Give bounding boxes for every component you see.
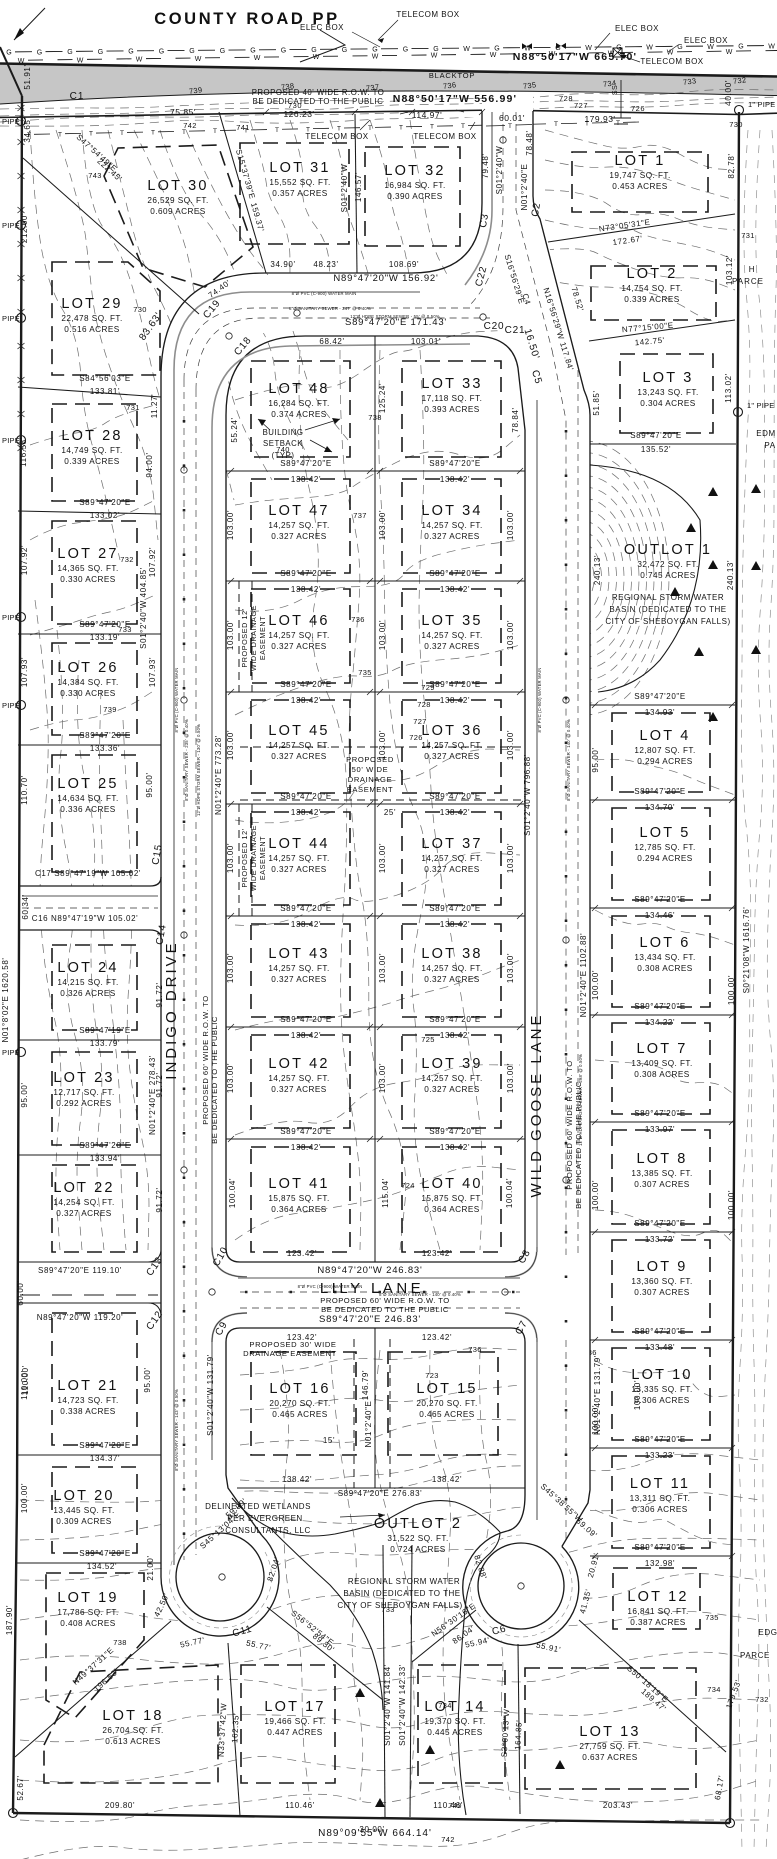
svg-text:H: H: [749, 265, 755, 274]
svg-text:743: 743: [88, 171, 101, 180]
svg-text:123.42': 123.42': [422, 1249, 452, 1258]
svg-text:LOT 43: LOT 43: [268, 946, 329, 962]
svg-text:DRAINAGE EASEMENT: DRAINAGE EASEMENT: [243, 1349, 337, 1358]
svg-text:S89°47'20"E: S89°47'20"E: [79, 498, 131, 507]
svg-text:20,270 SQ. FT.: 20,270 SQ. FT.: [416, 1399, 477, 1408]
svg-text:W: W: [490, 52, 497, 59]
svg-text:100.00': 100.00': [727, 975, 736, 1005]
svg-text:739: 739: [103, 705, 116, 714]
svg-text:138.42': 138.42': [291, 696, 321, 705]
svg-text:LOT 27: LOT 27: [57, 546, 118, 562]
svg-text:138.42': 138.42': [440, 475, 470, 484]
svg-text:SETBACK: SETBACK: [263, 439, 303, 448]
svg-text:S89°47'20"E: S89°47'20"E: [634, 692, 686, 701]
svg-text:PROPOSED 30' WIDE: PROPOSED 30' WIDE: [249, 1340, 336, 1349]
svg-text:103.00': 103.00': [226, 843, 235, 873]
svg-text:79.48': 79.48': [481, 153, 490, 178]
svg-text:T: T: [616, 120, 620, 127]
svg-text:0.307 ACRES: 0.307 ACRES: [634, 1180, 690, 1189]
svg-text:0.308 ACRES: 0.308 ACRES: [637, 964, 693, 973]
svg-text:103.00': 103.00': [506, 620, 515, 650]
svg-text:0.327 ACRES: 0.327 ACRES: [424, 642, 480, 651]
svg-text:138.42': 138.42': [440, 1143, 470, 1152]
svg-text:G: G: [342, 47, 347, 54]
svg-text:91.72': 91.72': [155, 982, 164, 1007]
svg-text:W: W: [195, 56, 202, 63]
svg-text:14,754 SQ. FT.: 14,754 SQ. FT.: [621, 284, 682, 293]
svg-text:S89°47'20"E: S89°47'20"E: [280, 680, 332, 689]
svg-text:13,409 SQ. FT.: 13,409 SQ. FT.: [631, 1059, 692, 1068]
svg-text:PIPE: PIPE: [2, 1048, 20, 1057]
svg-text:14,749 SQ. FT.: 14,749 SQ. FT.: [61, 446, 122, 455]
svg-text:212.60': 212.60': [20, 213, 29, 243]
svg-text:31,522 SQ. FT.: 31,522 SQ. FT.: [387, 1534, 448, 1543]
svg-text:17,786 SQ. FT.: 17,786 SQ. FT.: [57, 1608, 118, 1617]
svg-text:138.42': 138.42': [282, 1475, 312, 1484]
svg-text:S0°21'08"W 1616.76': S0°21'08"W 1616.76': [742, 907, 751, 994]
svg-text:735: 735: [358, 668, 371, 677]
svg-text:LOT 39: LOT 39: [421, 1056, 482, 1072]
svg-text:S89°47'20"E: S89°47'20"E: [79, 1549, 131, 1558]
svg-text:EDM: EDM: [756, 429, 776, 438]
svg-text:C17 S89°47'19"W 105.02': C17 S89°47'19"W 105.02': [35, 869, 141, 878]
svg-text:0.327 ACRES: 0.327 ACRES: [424, 532, 480, 541]
svg-text:PA: PA: [764, 441, 775, 450]
svg-text:LOT 5: LOT 5: [639, 825, 690, 841]
svg-text:G: G: [37, 49, 42, 56]
svg-text:13,360 SQ. FT.: 13,360 SQ. FT.: [631, 1277, 692, 1286]
svg-text:0.745 ACRES: 0.745 ACRES: [640, 571, 696, 580]
svg-text:SS: SS: [612, 85, 619, 95]
svg-text:BASIN (DEDICATED TO THE: BASIN (DEDICATED TO THE: [609, 605, 726, 614]
svg-text:138.42': 138.42': [291, 585, 321, 594]
svg-text:0.327 ACRES: 0.327 ACRES: [271, 752, 327, 761]
svg-text:WIDE DRAINAGE: WIDE DRAINAGE: [249, 825, 258, 891]
svg-text:BE DEDICATED TO THE PUBLIC: BE DEDICATED TO THE PUBLIC: [253, 97, 384, 106]
svg-text:14,634 SQ. FT.: 14,634 SQ. FT.: [57, 794, 118, 803]
svg-text:103.00': 103.00': [378, 953, 387, 983]
svg-text:S01°2'40"W 131.79': S01°2'40"W 131.79': [206, 1354, 215, 1436]
svg-text:26,529 SQ. FT.: 26,529 SQ. FT.: [147, 196, 208, 205]
svg-text:135.52': 135.52': [641, 445, 671, 454]
svg-text:S89°47'20"E: S89°47'20"E: [280, 459, 332, 468]
svg-text:12"Ø HDPE STORM SEWER - 130' @: 12"Ø HDPE STORM SEWER - 130' @ 0.50%: [196, 724, 201, 816]
svg-text:0.724 ACRES: 0.724 ACRES: [390, 1545, 446, 1554]
svg-text:113.02': 113.02': [724, 373, 733, 403]
svg-text:LOT 32: LOT 32: [384, 163, 445, 179]
svg-text:103.00': 103.00': [226, 953, 235, 983]
svg-text:0.465 ACRES: 0.465 ACRES: [272, 1410, 328, 1419]
svg-text:725: 725: [421, 1035, 434, 1044]
svg-text:55.24': 55.24': [230, 417, 239, 442]
svg-text:ELEC BOX: ELEC BOX: [684, 36, 728, 45]
svg-text:0.294 ACRES: 0.294 ACRES: [637, 854, 693, 863]
svg-text:WIDE DRAINAGE: WIDE DRAINAGE: [249, 605, 258, 671]
svg-text:LOT 11: LOT 11: [630, 1476, 690, 1492]
svg-text:14,257 SQ. FT.: 14,257 SQ. FT.: [421, 964, 482, 973]
svg-text:W: W: [18, 58, 25, 65]
svg-text:14,257 SQ. FT.: 14,257 SQ. FT.: [268, 741, 329, 750]
svg-text:723: 723: [425, 1371, 438, 1380]
svg-text:0.387 ACRES: 0.387 ACRES: [630, 1618, 686, 1627]
svg-text:187.90': 187.90': [5, 1605, 14, 1635]
svg-text:0.336 ACRES: 0.336 ACRES: [60, 805, 116, 814]
svg-text:PROPOSED 12': PROPOSED 12': [240, 608, 249, 667]
svg-text:726: 726: [631, 104, 645, 113]
svg-text:W: W: [254, 55, 261, 62]
svg-text:0.447 ACRES: 0.447 ACRES: [267, 1728, 323, 1737]
svg-text:107.93': 107.93': [20, 657, 29, 687]
svg-text:LOT 37: LOT 37: [421, 836, 482, 852]
svg-text:S89°47'20"E: S89°47'20"E: [634, 1109, 686, 1118]
svg-text:CITY OF SHEBOYGAN FALLS): CITY OF SHEBOYGAN FALLS): [605, 617, 730, 626]
svg-text:G: G: [189, 48, 194, 55]
svg-text:100.00': 100.00': [727, 1190, 736, 1220]
svg-text:91.72': 91.72': [155, 1187, 164, 1212]
svg-text:19,370 SQ. FT.: 19,370 SQ. FT.: [424, 1717, 485, 1726]
svg-text:0.294 ACRES: 0.294 ACRES: [637, 757, 693, 766]
svg-text:T: T: [461, 123, 465, 130]
svg-text:103.00': 103.00': [506, 953, 515, 983]
svg-text:0.637 ACRES: 0.637 ACRES: [582, 1753, 638, 1762]
svg-text:12,785 SQ. FT.: 12,785 SQ. FT.: [634, 843, 695, 852]
svg-text:95.00': 95.00': [20, 1082, 29, 1107]
svg-text:PROPOSED 60' WIDE R.O.W. TO: PROPOSED 60' WIDE R.O.W. TO: [320, 1296, 449, 1305]
svg-text:107.92': 107.92': [148, 547, 157, 577]
svg-text:103.00': 103.00': [226, 1063, 235, 1093]
svg-text:40.00': 40.00': [723, 80, 733, 106]
svg-text:T: T: [244, 128, 248, 135]
svg-text:N89°47'20"W 156.92': N89°47'20"W 156.92': [333, 273, 438, 284]
svg-text:736: 736: [442, 80, 457, 91]
svg-text:LOT 28: LOT 28: [61, 428, 122, 444]
svg-text:G: G: [403, 46, 408, 53]
svg-text:0.327 ACRES: 0.327 ACRES: [424, 1085, 480, 1094]
svg-text:240.13': 240.13': [593, 555, 602, 585]
svg-text:LOT 9: LOT 9: [636, 1259, 687, 1275]
svg-text:103.00': 103.00': [506, 510, 515, 540]
svg-text:LOT 24: LOT 24: [57, 960, 118, 976]
svg-text:133.94': 133.94': [90, 1154, 120, 1163]
svg-text:60.01': 60.01': [499, 113, 525, 123]
svg-text:0.327 ACRES: 0.327 ACRES: [271, 642, 327, 651]
svg-text:T: T: [399, 124, 403, 131]
svg-text:S89°47'20"E: S89°47'20"E: [429, 569, 481, 578]
svg-text:T: T: [120, 130, 124, 137]
svg-text:51.91': 51.91': [23, 64, 32, 89]
svg-text:N01°2'40"E 773.28': N01°2'40"E 773.28': [214, 735, 223, 815]
svg-text:108.69': 108.69': [389, 260, 419, 269]
svg-text:134.70': 134.70': [645, 803, 675, 812]
svg-text:13,311 SQ. FT.: 13,311 SQ. FT.: [630, 1494, 691, 1503]
svg-text:LOT 42: LOT 42: [268, 1056, 329, 1072]
svg-text:34.90': 34.90': [270, 260, 295, 269]
svg-text:1" PIPE: 1" PIPE: [748, 100, 775, 109]
svg-text:PROPOSED 60' WIDE R.O.W. TO: PROPOSED 60' WIDE R.O.W. TO: [201, 995, 210, 1124]
svg-text:G: G: [67, 49, 72, 56]
svg-text:LOT 21: LOT 21: [57, 1378, 118, 1394]
svg-text:LOT 16: LOT 16: [269, 1381, 330, 1397]
svg-text:0.339 ACRES: 0.339 ACRES: [64, 457, 120, 466]
svg-text:S89°47'20"E: S89°47'20"E: [79, 1141, 131, 1150]
svg-text:LOT 23: LOT 23: [53, 1070, 114, 1086]
svg-text:107.92': 107.92': [20, 545, 29, 575]
svg-text:S89°47'20"E: S89°47'20"E: [634, 787, 686, 796]
svg-text:114.97': 114.97': [412, 110, 443, 120]
svg-text:LOT 29: LOT 29: [61, 296, 122, 312]
svg-text:EASEMENT: EASEMENT: [258, 836, 267, 880]
svg-text:138.42': 138.42': [291, 808, 321, 817]
svg-text:W: W: [431, 53, 438, 60]
svg-text:S89°47'20"E 171.43': S89°47'20"E 171.43': [345, 317, 447, 328]
svg-text:W: W: [77, 57, 84, 64]
svg-text:14,257 SQ. FT.: 14,257 SQ. FT.: [268, 1074, 329, 1083]
svg-text:138.42': 138.42': [440, 920, 470, 929]
svg-text:107.93': 107.93': [148, 657, 157, 687]
svg-text:100.04': 100.04': [505, 1178, 514, 1208]
svg-text:0.330 ACRES: 0.330 ACRES: [60, 575, 116, 584]
svg-text:25': 25': [384, 808, 396, 817]
svg-text:0.364 ACRES: 0.364 ACRES: [424, 1205, 480, 1214]
svg-text:103.01': 103.01': [411, 337, 441, 346]
svg-text:0.309 ACRES: 0.309 ACRES: [56, 1517, 112, 1526]
svg-text:0.609 ACRES: 0.609 ACRES: [150, 207, 206, 216]
svg-text:0.326 ACRES: 0.326 ACRES: [60, 989, 116, 998]
svg-text:S01°2'40"W 796.88': S01°2'40"W 796.88': [523, 754, 532, 836]
svg-text:S89°47'19"E: S89°47'19"E: [79, 1026, 131, 1035]
svg-text:14,384 SQ. FT.: 14,384 SQ. FT.: [57, 678, 118, 687]
svg-text:133.81': 133.81': [90, 387, 120, 396]
svg-text:164.85': 164.85': [513, 1720, 524, 1751]
svg-text:15': 15': [323, 1436, 335, 1445]
svg-text:95.00': 95.00': [591, 747, 600, 772]
svg-text:1" PIPE: 1" PIPE: [747, 401, 774, 410]
svg-text:0.307 ACRES: 0.307 ACRES: [634, 1288, 690, 1297]
svg-text:14,257 SQ. FT.: 14,257 SQ. FT.: [421, 1074, 482, 1083]
svg-text:133.72': 133.72': [645, 1235, 675, 1244]
svg-text:138.42': 138.42': [440, 808, 470, 817]
svg-text:100.00': 100.00': [591, 970, 600, 1000]
svg-text:G: G: [311, 47, 316, 54]
svg-text:REGIONAL STORM WATER: REGIONAL STORM WATER: [612, 593, 724, 602]
svg-text:OUTLOT 1: OUTLOT 1: [624, 542, 712, 558]
svg-text:0.327 ACRES: 0.327 ACRES: [271, 1085, 327, 1094]
svg-text:LOT 34: LOT 34: [421, 503, 482, 519]
svg-text:103.00': 103.00': [378, 510, 387, 540]
svg-text:14,257 SQ. FT.: 14,257 SQ. FT.: [268, 964, 329, 973]
svg-text:146.57': 146.57': [354, 172, 363, 202]
svg-text:133.36': 133.36': [90, 744, 120, 753]
svg-text:G: G: [250, 48, 255, 55]
svg-text:14,254 SQ. FT.: 14,254 SQ. FT.: [53, 1198, 114, 1207]
svg-text:179.93': 179.93': [584, 114, 615, 124]
svg-text:T: T: [554, 121, 558, 128]
svg-text:0.465 ACRES: 0.465 ACRES: [419, 1410, 475, 1419]
svg-text:0.516 ACRES: 0.516 ACRES: [64, 325, 120, 334]
svg-text:103.00': 103.00': [226, 620, 235, 650]
svg-text:737: 737: [353, 511, 366, 520]
svg-text:14,257 SQ. FT.: 14,257 SQ. FT.: [421, 854, 482, 863]
svg-text:S89°47'20"E: S89°47'20"E: [429, 904, 481, 913]
svg-text:132.98': 132.98': [645, 1559, 675, 1568]
svg-text:PARCE: PARCE: [740, 1651, 770, 1660]
svg-text:16,841 SQ. FT.: 16,841 SQ. FT.: [627, 1607, 688, 1616]
svg-text:735: 735: [705, 1613, 718, 1622]
svg-text:115.04': 115.04': [381, 1178, 390, 1208]
svg-text:209.80': 209.80': [105, 1801, 135, 1810]
svg-text:8"Ø PVC (C-900) WATER MAIN: 8"Ø PVC (C-900) WATER MAIN: [537, 668, 542, 733]
svg-text:19,466 SQ. FT.: 19,466 SQ. FT.: [264, 1717, 325, 1726]
svg-text:T: T: [275, 127, 279, 134]
svg-text:S89°47'20"E 246.83': S89°47'20"E 246.83': [319, 1314, 421, 1325]
svg-text:138.42': 138.42': [440, 696, 470, 705]
svg-text:75.85': 75.85': [170, 107, 196, 117]
svg-text:S89°47'20"E: S89°47'20"E: [429, 680, 481, 689]
svg-text:S89°47'20"E: S89°47'20"E: [280, 792, 332, 801]
svg-text:0.357 ACRES: 0.357 ACRES: [272, 189, 328, 198]
svg-text:PARCE: PARCE: [732, 277, 764, 286]
svg-text:138.42': 138.42': [432, 1475, 462, 1484]
svg-text:732: 732: [732, 75, 747, 86]
svg-text:LOT 46: LOT 46: [268, 613, 329, 629]
svg-text:138.42': 138.42': [291, 920, 321, 929]
svg-text:S89°47'20"E: S89°47'20"E: [630, 431, 682, 440]
svg-text:S89°47'20"E: S89°47'20"E: [634, 1543, 686, 1552]
svg-text:78.84': 78.84': [511, 407, 520, 432]
svg-text:27,759 SQ. FT.: 27,759 SQ. FT.: [579, 1742, 640, 1751]
svg-text:N89°47'20"W 246.83': N89°47'20"W 246.83': [317, 1265, 422, 1276]
svg-text:W: W: [463, 46, 470, 53]
svg-text:138.42': 138.42': [291, 1143, 321, 1152]
svg-text:100.00': 100.00': [591, 1405, 600, 1435]
svg-text:8"Ø PVC (C-900) WATER MAIN: 8"Ø PVC (C-900) WATER MAIN: [292, 291, 357, 296]
svg-text:14,257 SQ. FT.: 14,257 SQ. FT.: [421, 631, 482, 640]
svg-text:48.23': 48.23': [313, 260, 338, 269]
svg-text:S01°2'40"W 142.33': S01°2'40"W 142.33': [398, 1664, 407, 1746]
svg-text:0.292 ACRES: 0.292 ACRES: [56, 1099, 112, 1108]
svg-text:LOT 12: LOT 12: [627, 1589, 688, 1605]
svg-text:LOT 15: LOT 15: [416, 1381, 477, 1397]
svg-text:W: W: [136, 57, 143, 64]
svg-text:94.00': 94.00': [145, 452, 154, 477]
svg-text:BE DEDICATED TO THE PUBLIC: BE DEDICATED TO THE PUBLIC: [574, 1081, 583, 1209]
svg-text:732: 732: [755, 1695, 768, 1704]
svg-text:LOT 25: LOT 25: [57, 776, 118, 792]
svg-text:INDIGO DRIVE: INDIGO DRIVE: [163, 940, 180, 1079]
svg-text:S89°47'20"E: S89°47'20"E: [429, 792, 481, 801]
svg-text:PIPE: PIPE: [2, 613, 20, 622]
svg-text:N01°2'40"E: N01°2'40"E: [520, 164, 529, 211]
svg-text:LOT 17: LOT 17: [264, 1699, 325, 1715]
svg-text:S89°47'20"E: S89°47'20"E: [634, 1327, 686, 1336]
svg-text:0.327 ACRES: 0.327 ACRES: [56, 1209, 112, 1218]
svg-text:0.408 ACRES: 0.408 ACRES: [60, 1619, 116, 1628]
svg-text:731: 731: [741, 231, 754, 240]
svg-text:BE DEDICATED TO THE PUBLIC: BE DEDICATED TO THE PUBLIC: [321, 1305, 449, 1314]
svg-text:S89°47'20"E: S89°47'20"E: [429, 459, 481, 468]
svg-text:S89°47'20"E: S89°47'20"E: [280, 1015, 332, 1024]
svg-text:G: G: [159, 48, 164, 55]
svg-text:S89°47'20"E: S89°47'20"E: [429, 1015, 481, 1024]
svg-text:14,257 SQ. FT.: 14,257 SQ. FT.: [268, 521, 329, 530]
svg-text:68.42': 68.42': [319, 337, 344, 346]
svg-text:PROPOSED 40' WIDE R.O.W. TO: PROPOSED 40' WIDE R.O.W. TO: [252, 88, 385, 97]
svg-text:724: 724: [401, 1181, 414, 1190]
svg-text:T: T: [213, 128, 217, 135]
svg-text:LOT 8: LOT 8: [636, 1151, 687, 1167]
svg-text:134.37': 134.37': [90, 1454, 120, 1463]
svg-text:733: 733: [682, 76, 697, 87]
svg-text:S89°47'20"E: S89°47'20"E: [79, 620, 131, 629]
svg-text:739: 739: [188, 85, 203, 96]
svg-text:T: T: [151, 129, 155, 136]
svg-text:LOT 44: LOT 44: [268, 836, 329, 852]
svg-text:0.330 ACRES: 0.330 ACRES: [60, 689, 116, 698]
svg-text:15,875 SQ. FT.: 15,875 SQ. FT.: [268, 1194, 329, 1203]
svg-text:S01°2'40"W: S01°2'40"W: [340, 164, 349, 213]
svg-text:12,807 SQ. FT.: 12,807 SQ. FT.: [634, 746, 695, 755]
svg-text:134.46': 134.46': [645, 911, 675, 920]
svg-text:G: G: [220, 48, 225, 55]
svg-text:BE DEDICATED TO THE PUBLIC: BE DEDICATED TO THE PUBLIC: [210, 1016, 219, 1144]
svg-text:LOT 7: LOT 7: [636, 1041, 687, 1057]
svg-text:N88°50'17"W 556.99': N88°50'17"W 556.99': [393, 93, 518, 105]
svg-text:PROPOSED: PROPOSED: [346, 755, 394, 764]
svg-text:133.23': 133.23': [645, 1451, 675, 1460]
svg-text:133.19': 133.19': [90, 633, 120, 642]
svg-text:17,118 SQ. FT.: 17,118 SQ. FT.: [422, 394, 483, 403]
svg-text:LOT 35: LOT 35: [421, 613, 482, 629]
svg-text:134.22': 134.22': [645, 1018, 675, 1027]
svg-text:0.374 ACRES: 0.374 ACRES: [271, 410, 327, 419]
svg-text:133.97': 133.97': [645, 1125, 675, 1134]
svg-text:TELECOM BOX: TELECOM BOX: [305, 132, 368, 141]
svg-text:EASEMENT: EASEMENT: [258, 616, 267, 660]
svg-text:0.327 ACRES: 0.327 ACRES: [271, 532, 327, 541]
svg-text:S84°56'03"E: S84°56'03"E: [79, 374, 131, 383]
svg-text:110.00': 110.00': [21, 1365, 30, 1395]
svg-text:W: W: [372, 53, 379, 60]
svg-text:738: 738: [113, 1638, 126, 1647]
svg-text:732: 732: [120, 555, 133, 564]
svg-text:PIPE: PIPE: [2, 314, 20, 323]
svg-text:BASIN (DEDICATED TO THE: BASIN (DEDICATED TO THE: [343, 1589, 460, 1598]
svg-text:LOT 26: LOT 26: [57, 660, 118, 676]
svg-text:734: 734: [707, 1685, 720, 1694]
svg-text:T: T: [508, 123, 512, 130]
svg-text:LOT 13: LOT 13: [579, 1724, 640, 1740]
svg-text:LOT 1: LOT 1: [614, 153, 665, 169]
svg-text:0.306 ACRES: 0.306 ACRES: [634, 1396, 690, 1405]
svg-text:100.04': 100.04': [228, 1178, 237, 1208]
svg-text:T: T: [430, 124, 434, 131]
svg-text:REGIONAL STORM WATER: REGIONAL STORM WATER: [348, 1577, 460, 1586]
svg-text:82.78': 82.78': [727, 153, 736, 178]
svg-text:T: T: [89, 131, 93, 138]
svg-text:G: G: [738, 44, 743, 51]
svg-text:S89°47'20"E: S89°47'20"E: [79, 1441, 131, 1450]
svg-text:PIPE: PIPE: [2, 221, 20, 230]
svg-text:W: W: [646, 44, 653, 51]
svg-text:S89°47'20"E: S89°47'20"E: [280, 904, 332, 913]
svg-text:WILD GOOSE LANE: WILD GOOSE LANE: [528, 1012, 545, 1197]
svg-text:8"Ø SANITARY SEWER - 140' @ 0.: 8"Ø SANITARY SEWER - 140' @ 0.40%: [566, 719, 571, 801]
svg-text:W: W: [768, 43, 775, 50]
svg-text:TELECOM BOX: TELECOM BOX: [640, 57, 703, 66]
svg-text:78.48': 78.48': [525, 130, 534, 155]
svg-text:138.42': 138.42': [440, 1031, 470, 1040]
svg-text:T: T: [182, 129, 186, 136]
